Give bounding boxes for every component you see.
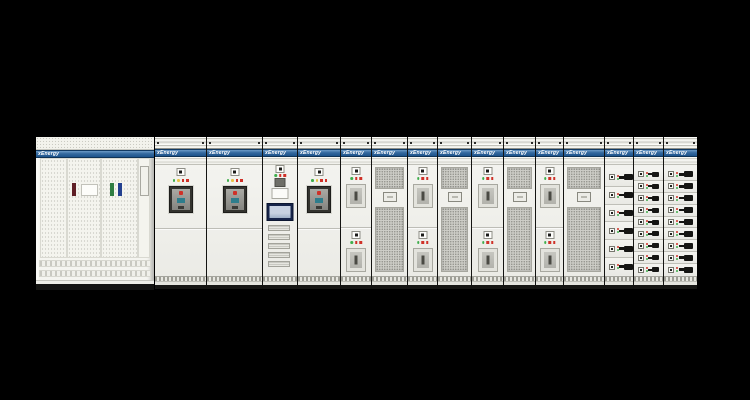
brand-stripe: xEnergy [155, 149, 206, 157]
drawer-stack [634, 169, 663, 275]
mesh-vent-panel-lower [507, 207, 532, 272]
switch-disconnector-module [346, 248, 366, 272]
brand-stripe: xEnergy [564, 149, 604, 157]
drawer-indicator-window [609, 210, 615, 216]
switch-compartment-2 [408, 229, 437, 276]
drawer-indicator-window [609, 192, 615, 198]
drawer-unit [634, 181, 663, 193]
drawer-pilot-lights [676, 243, 678, 248]
pilot-light-red [320, 179, 323, 182]
drawer-indicator-window [638, 231, 644, 237]
section-body [504, 165, 535, 276]
door-lock-plate [577, 192, 591, 202]
circuit-breaker-face [172, 189, 190, 210]
handle-stem [619, 176, 624, 179]
pilot-light-green [544, 241, 547, 244]
drawer-unit [664, 205, 697, 217]
hmi-touchscreen [267, 203, 294, 221]
handle-knob [624, 210, 633, 216]
pilot-light-red [676, 267, 678, 269]
plinth [536, 285, 563, 289]
drawer-handle [619, 228, 633, 234]
top-vent-louvers [634, 137, 663, 149]
breaker-status-indicator [315, 168, 324, 176]
handle-knob [684, 195, 693, 201]
pilot-light-red [426, 177, 429, 180]
pilot-light-red [676, 231, 678, 233]
handle-knob [652, 220, 659, 225]
brand-label: xEnergy [263, 151, 286, 156]
top-vent-louvers [438, 137, 471, 149]
drawer-indicator-window [668, 183, 674, 189]
handle-knob [624, 174, 633, 180]
drawer-handle [648, 267, 659, 272]
top-vent-louvers [372, 137, 407, 149]
brand-stripe: xEnergy [605, 149, 633, 157]
handle-knob [684, 207, 693, 213]
section-feeder-acb-3: xEnergy [297, 137, 340, 289]
brand-label: xEnergy [634, 151, 657, 156]
brand-stripe: xEnergy [634, 149, 663, 157]
brand-label: xEnergy [372, 151, 395, 156]
drawer-pilot-lights [676, 220, 678, 225]
handle-knob [684, 267, 693, 273]
drawer-unit [634, 193, 663, 205]
drawer-unit [634, 228, 663, 240]
pilot-light-amber [316, 179, 319, 182]
section-vent-panel-3: xEnergy [503, 137, 535, 289]
switch-disconnector-module [346, 184, 366, 208]
upper-vent-louvers [634, 157, 663, 165]
top-vent-louvers [298, 137, 340, 149]
handle-stem [619, 230, 624, 233]
pilot-light-green [676, 270, 678, 272]
brand-stripe: xEnergy [504, 149, 535, 157]
brand-label: xEnergy [438, 151, 461, 156]
pilot-light-red [421, 177, 424, 180]
mesh-vent-panel-upper [375, 167, 404, 189]
section-body [298, 165, 340, 276]
section-body [408, 165, 437, 276]
drawer-handle [679, 171, 693, 177]
section-body [605, 165, 633, 276]
pilot-light-red [548, 241, 551, 244]
upper-vent-louvers [664, 157, 697, 165]
drawer-handle [648, 172, 659, 177]
switch-disconnector-module [413, 248, 433, 272]
pilot-light-red [325, 179, 328, 182]
pilot-light-red [676, 184, 678, 186]
switch-indicator [545, 231, 554, 239]
indicator-lights [350, 241, 362, 244]
upper-vent-louvers [372, 157, 407, 165]
plinth [155, 285, 206, 289]
switch-disconnector-module [413, 184, 433, 208]
upper-vent-louvers [438, 157, 471, 165]
perforated-door-1 [40, 158, 67, 258]
pilot-light-red [491, 177, 494, 180]
drawer-pilot-lights [676, 231, 678, 236]
pilot-light-green [676, 199, 678, 201]
switch-disconnector-module [540, 248, 560, 272]
breaker-status-indicator [230, 168, 239, 176]
section-body [664, 165, 697, 276]
pilot-light-red [355, 177, 358, 180]
brand-label: xEnergy [155, 151, 178, 156]
switch-indicator [483, 231, 492, 239]
mesh-vent-panel-upper [507, 167, 532, 189]
drawer-handle [648, 196, 659, 201]
upper-vent-louvers [207, 157, 262, 165]
drawer-handle [619, 210, 633, 216]
pilot-light-green [227, 179, 230, 182]
pilot-light-red [359, 241, 362, 244]
section-switch-feeder-3: xEnergy [471, 137, 503, 289]
handle-knob [684, 243, 693, 249]
pilot-light-red [548, 177, 551, 180]
drawer-handle [679, 231, 693, 237]
drawer-indicator-window [638, 243, 644, 249]
pilot-light-red [182, 179, 185, 182]
pilot-light-red [553, 177, 556, 180]
drawer-pilot-lights [676, 267, 678, 272]
brand-label: xEnergy [605, 151, 628, 156]
pilot-light-amber [177, 179, 180, 182]
drawer-handle [648, 231, 659, 236]
switch-indicator [418, 231, 427, 239]
top-vent-louvers [536, 137, 563, 149]
indicator-lights [417, 177, 429, 180]
drawer-indicator-window [668, 255, 674, 261]
pilot-light-green [676, 246, 678, 248]
top-vent-louvers [504, 137, 535, 149]
top-vent-louvers [341, 137, 371, 149]
handle-stem [619, 247, 624, 250]
pilot-light-green [417, 177, 420, 180]
switch-indicator [352, 231, 361, 239]
mesh-vent-panel-upper [441, 167, 468, 189]
plinth [634, 285, 663, 289]
drawer-unit [634, 264, 663, 275]
top-vent-louvers [564, 137, 604, 149]
plinth [298, 285, 340, 289]
upper-vent-louvers [564, 157, 604, 165]
section-body [207, 165, 262, 276]
pilot-light-green [544, 177, 547, 180]
drawer-unit [664, 264, 697, 275]
section-body [634, 165, 663, 276]
drawer-indicator-window [668, 231, 674, 237]
pilot-light-green [350, 241, 353, 244]
drawer-indicator-window [638, 267, 644, 273]
handle-knob [684, 183, 693, 189]
compartment-divider [155, 228, 206, 229]
mesh-vent-panel-lower [375, 207, 404, 272]
top-vent-louvers [408, 137, 437, 149]
drawer-handle [679, 243, 693, 249]
section-body [472, 165, 503, 276]
drawer-indicator-window [609, 246, 615, 252]
drawer-unit [664, 217, 697, 229]
pilot-light-red [421, 241, 424, 244]
pilot-light-red [676, 255, 678, 257]
section-vent-panel-2: xEnergy [437, 137, 471, 289]
vent-band-1 [39, 260, 151, 267]
drawer-handle [648, 208, 659, 213]
red-handle-bar [72, 183, 76, 196]
section-body [438, 165, 471, 276]
air-circuit-breaker-window [223, 186, 247, 213]
plinth [263, 285, 297, 289]
drawer-handle [619, 264, 633, 270]
drawer-stack [664, 169, 697, 275]
drawer-indicator-window [638, 219, 644, 225]
switchgear-lineup-photo: xEnergy xEnergyxEnergyxEnergyxEnergyxEne… [0, 0, 750, 400]
pilot-light-red [676, 220, 678, 222]
top-vent-louvers [263, 137, 297, 149]
section-body [564, 165, 604, 276]
top-vent-louvers [155, 137, 206, 149]
junction-box [275, 178, 286, 187]
drawer-handle [679, 219, 693, 225]
drawer-unit [664, 228, 697, 240]
drawer-indicator-window [609, 264, 615, 270]
door-lock-plate [383, 192, 397, 202]
switch-disconnector-module [478, 184, 498, 208]
drawer-unit [605, 240, 633, 258]
brand-stripe: xEnergy [536, 149, 563, 157]
drawer-handle [679, 195, 693, 201]
drawer-unit [605, 258, 633, 275]
terminal-comb [268, 225, 290, 231]
brand-label: xEnergy [341, 151, 364, 156]
section-vent-panel-1: xEnergy [371, 137, 407, 289]
door-label [81, 184, 98, 196]
section-vent-panel-4: xEnergy [563, 137, 604, 289]
pilot-light-green [676, 234, 678, 236]
upper-vent-louvers [298, 157, 340, 165]
pilot-light-green [676, 258, 678, 260]
pilot-light-red [486, 241, 489, 244]
indicator-lights [227, 179, 243, 182]
top-vent-louvers [605, 137, 633, 149]
terminal-comb [268, 252, 290, 258]
drawer-handle [679, 183, 693, 189]
section-body [341, 165, 371, 276]
pilot-light-green [350, 177, 353, 180]
handle-knob [652, 231, 659, 236]
handle-stem [619, 265, 624, 268]
drawer-unit [634, 205, 663, 217]
terminal-comb [268, 243, 290, 249]
pilot-light-green [482, 177, 485, 180]
section-body [536, 165, 563, 276]
plinth [408, 285, 437, 289]
handle-stem [619, 212, 624, 215]
drawer-indicator-window [668, 207, 674, 213]
pilot-light-red [236, 179, 239, 182]
drawer-unit [605, 187, 633, 205]
breaker-status-indicator [176, 168, 185, 176]
cabinet-plinth [36, 284, 154, 290]
indicator-lights [417, 241, 429, 244]
indicator-lights [173, 179, 189, 182]
drawer-unit [664, 169, 697, 181]
plinth [372, 285, 407, 289]
pilot-light-red [676, 172, 678, 174]
drawer-handle [679, 207, 693, 213]
cabinet-perforated-top [36, 137, 154, 150]
pilot-light-red [279, 174, 282, 177]
handle-knob [624, 192, 633, 198]
brand-label: xEnergy [536, 151, 559, 156]
section-switch-feeder-1: xEnergy [340, 137, 371, 289]
circuit-breaker-face [226, 189, 244, 210]
upper-vent-louvers [263, 157, 297, 165]
pilot-light-green [274, 174, 277, 177]
indicator-lights [311, 179, 327, 182]
handle-knob [652, 243, 659, 248]
drawer-unit [664, 252, 697, 264]
top-vent-louvers [207, 137, 262, 149]
drawer-unit [605, 222, 633, 240]
drawer-indicator-window [668, 171, 674, 177]
pilot-light-red [676, 208, 678, 210]
drawer-handle [619, 192, 633, 198]
drawer-indicator-window [638, 171, 644, 177]
drawer-stack [605, 169, 633, 275]
drawer-handle [619, 246, 633, 252]
indicator-lights [544, 177, 556, 180]
handle-knob [652, 172, 659, 177]
brand-stripe: xEnergy [263, 149, 297, 157]
drawer-pilot-lights [676, 208, 678, 213]
switch-compartment-1 [408, 165, 437, 228]
brand-label: xEnergy [664, 151, 687, 156]
handle-knob [652, 255, 659, 260]
pilot-light-green [173, 179, 176, 182]
brand-label: xEnergy [504, 151, 527, 156]
indicator-lights [544, 241, 556, 244]
switch-compartment-1 [472, 165, 503, 228]
drawer-unit [634, 169, 663, 181]
drawer-pilot-lights [676, 196, 678, 201]
section-body [372, 165, 407, 276]
plinth [664, 285, 697, 289]
plinth [341, 285, 371, 289]
switch-compartment-2 [536, 229, 563, 276]
side-frame-plate [140, 166, 149, 196]
plinth [605, 285, 633, 289]
door-lock-plate [513, 192, 527, 202]
drawer-indicator-window [668, 267, 674, 273]
drawer-unit [664, 193, 697, 205]
switch-indicator [352, 167, 361, 175]
handle-knob [652, 184, 659, 189]
compartment-divider [298, 228, 340, 229]
document-tray [272, 188, 289, 199]
pilot-light-green [311, 179, 314, 182]
plinth [207, 285, 262, 289]
perforated-door-3 [101, 158, 138, 258]
control-indicator [276, 165, 285, 173]
handle-knob [684, 171, 693, 177]
handle-knob [684, 255, 693, 261]
perforated-door-2 [67, 158, 101, 258]
mesh-vent-panel-lower [567, 207, 601, 272]
brand-label: xEnergy [472, 151, 495, 156]
pilot-light-red [359, 177, 362, 180]
pilot-light-green [676, 187, 678, 189]
mesh-vent-panel-lower [441, 207, 468, 272]
upper-vent-louvers [536, 157, 563, 165]
brand-label: xEnergy [36, 152, 59, 157]
green-handle-bar [110, 183, 114, 196]
pilot-light-red [240, 179, 243, 182]
handle-stem [619, 194, 624, 197]
switch-compartment-2 [341, 229, 371, 276]
drawer-indicator-window [609, 174, 615, 180]
pilot-light-red [186, 179, 189, 182]
brand-stripe: xEnergy [408, 149, 437, 157]
top-vent-louvers [664, 137, 697, 149]
pilot-light-red [553, 241, 556, 244]
blue-handle-bar [118, 183, 122, 196]
upper-vent-louvers [472, 157, 503, 165]
pilot-light-red [355, 241, 358, 244]
drawer-pilot-lights [676, 255, 678, 260]
switchgear-row: xEnergyxEnergyxEnergyxEnergyxEnergyxEner… [155, 137, 697, 289]
section-switch-feeder-4: xEnergy [535, 137, 563, 289]
drawer-handle [648, 220, 659, 225]
plinth [472, 285, 503, 289]
terminal-comb-stack [268, 225, 290, 267]
upper-vent-louvers [504, 157, 535, 165]
indicator-lights [350, 177, 362, 180]
brand-stripe: xEnergy [438, 149, 471, 157]
upper-vent-louvers [341, 157, 371, 165]
handle-knob [652, 196, 659, 201]
drawer-unit [634, 217, 663, 229]
handle-knob [624, 246, 633, 252]
brand-stripe: xEnergy [298, 149, 340, 157]
plinth [504, 285, 535, 289]
upper-vent-louvers [408, 157, 437, 165]
section-mcc-drawers-1: xEnergy [633, 137, 663, 289]
pilot-light-red [426, 241, 429, 244]
brand-stripe: xEnergy [664, 149, 697, 157]
drawer-indicator-window [638, 207, 644, 213]
drawer-unit [664, 181, 697, 193]
terminal-comb [268, 261, 290, 267]
pilot-light-red [676, 196, 678, 198]
section-switch-feeder-2: xEnergy [407, 137, 437, 289]
drawer-indicator-window [638, 255, 644, 261]
air-circuit-breaker-window [169, 186, 193, 213]
air-circuit-breaker-window [307, 186, 331, 213]
handle-knob [652, 208, 659, 213]
indicator-lights [482, 177, 494, 180]
section-body [263, 165, 297, 276]
brand-label: xEnergy [408, 151, 431, 156]
top-vent-louvers [472, 137, 503, 149]
section-incomer-acb-2: xEnergy [206, 137, 262, 289]
cabinet-doors [36, 158, 154, 258]
brand-label: xEnergy [298, 151, 321, 156]
drawer-indicator-window [668, 219, 674, 225]
brand-stripe: xEnergy [207, 149, 262, 157]
handle-knob [624, 228, 633, 234]
